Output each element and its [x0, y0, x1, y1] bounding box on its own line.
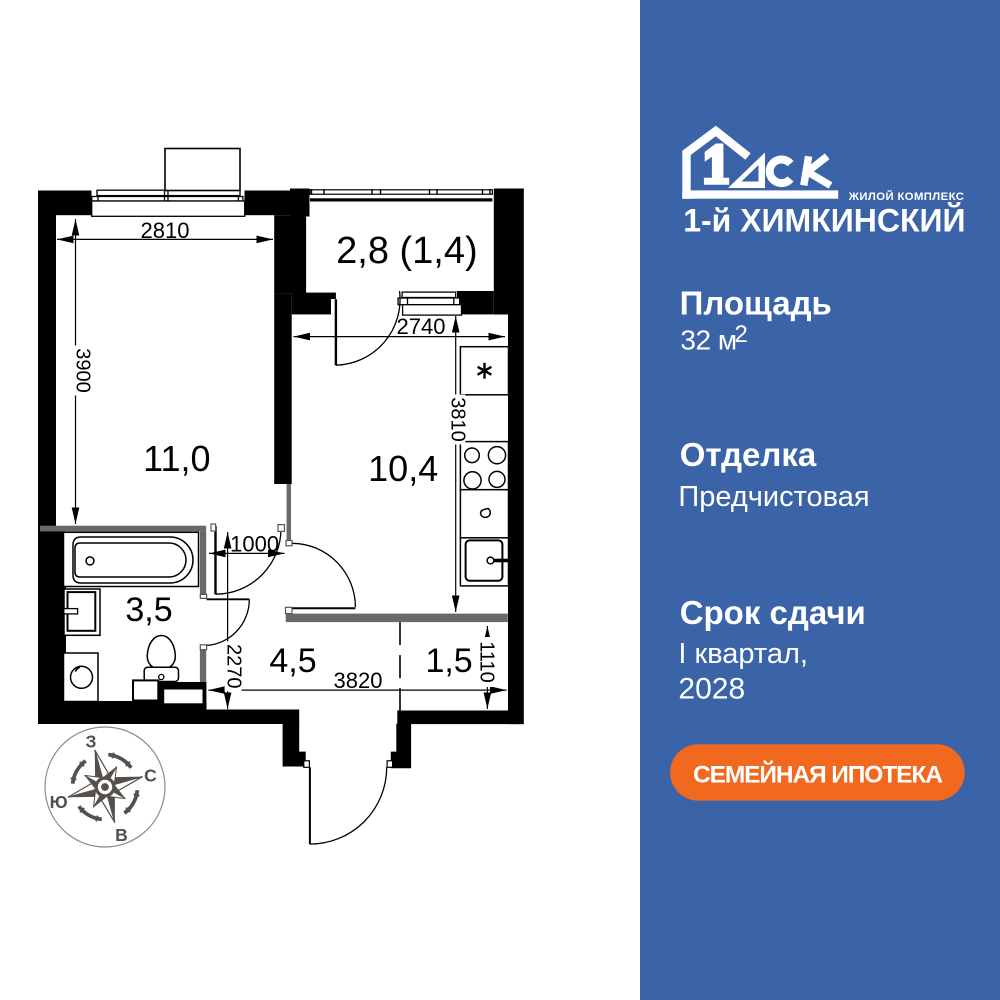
svg-text:3820: 3820: [334, 668, 383, 693]
svg-text:Предчистовая: Предчистовая: [678, 481, 869, 513]
svg-text:1,5: 1,5: [425, 642, 472, 680]
svg-text:1-й ХИМКИНСКИЙ: 1-й ХИМКИНСКИЙ: [683, 203, 965, 239]
svg-text:3810: 3810: [446, 397, 468, 442]
svg-text:2,8 (1,4): 2,8 (1,4): [336, 230, 478, 272]
svg-text:2810: 2810: [141, 218, 190, 243]
svg-text:1110: 1110: [476, 641, 498, 683]
svg-text:Площадь: Площадь: [680, 285, 832, 322]
svg-text:С: С: [144, 765, 157, 785]
svg-text:Отделка: Отделка: [680, 436, 817, 473]
svg-text:Срок сдачи: Срок сдачи: [680, 594, 866, 631]
svg-text:10,4: 10,4: [368, 448, 438, 489]
svg-text:2028: 2028: [678, 673, 745, 706]
svg-text:З: З: [86, 732, 97, 752]
svg-text:1000: 1000: [230, 532, 279, 557]
svg-text:32 м: 32 м: [680, 325, 736, 356]
svg-text:3900: 3900: [72, 348, 94, 393]
svg-text:СЕМЕЙНАЯ ИПОТЕКА: СЕМЕЙНАЯ ИПОТЕКА: [693, 761, 943, 789]
svg-text:2270: 2270: [223, 644, 245, 689]
svg-text:2: 2: [735, 321, 748, 348]
svg-text:Ю: Ю: [50, 792, 68, 812]
svg-text:11,0: 11,0: [143, 438, 210, 479]
svg-text:2740: 2740: [397, 314, 446, 339]
svg-text:I квартал,: I квартал,: [678, 638, 808, 670]
svg-text:4,5: 4,5: [269, 642, 316, 680]
svg-text:В: В: [115, 825, 128, 845]
svg-text:3,5: 3,5: [125, 591, 172, 629]
svg-text:ЖИЛОЙ КОМПЛЕКС: ЖИЛОЙ КОМПЛЕКС: [848, 190, 964, 203]
